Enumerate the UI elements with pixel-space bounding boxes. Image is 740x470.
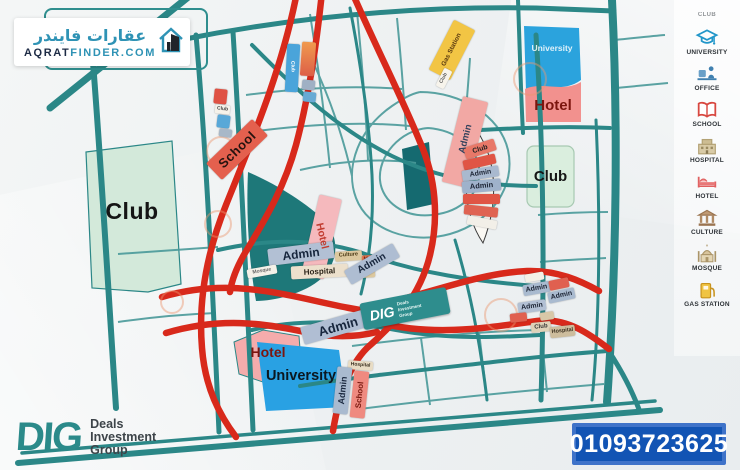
map-label-hotel-bottom: Hotel [238, 340, 298, 364]
brand-name-arabic: عقارات فايندر [34, 26, 146, 45]
legend-item-school: SCHOOL [692, 100, 721, 128]
sketch-circle [160, 290, 184, 314]
strip-orange-small [300, 42, 316, 77]
pillared-building-icon [695, 208, 719, 227]
strip-gray-small [302, 79, 316, 90]
legend-label-hotel: HOTEL [695, 193, 718, 200]
map-label-university-bottom: University [258, 366, 344, 386]
mosque-dome-icon [695, 244, 719, 263]
strip-blue-small [303, 91, 317, 102]
fuel-pump-icon [695, 280, 719, 299]
legend-item-office: OFFICE [694, 64, 719, 92]
map-label-club-left: Club [92, 196, 172, 226]
legend-item-culture: CULTURE [691, 208, 723, 236]
logo-card: عقارات فايندر AQRATFINDER.COM [14, 18, 190, 66]
strip-red-lens [463, 194, 500, 204]
sketch-circle [513, 62, 547, 96]
brand-domain-right: FINDER.COM [70, 47, 156, 59]
brand-domain: AQRATFINDER.COM [24, 47, 156, 59]
legend-label-mosque: MOSQUE [692, 265, 722, 272]
legend-label-hospital: HOSPITAL [690, 157, 724, 164]
legend-label-gas-station: GAS STATION [684, 301, 730, 308]
strip-club-tiny-left: Club [215, 104, 231, 115]
hospital-building-icon [695, 136, 719, 155]
phone-number-badge: 01093723625 [572, 423, 726, 465]
open-book-icon [695, 100, 719, 119]
company-line3: Group [90, 444, 156, 457]
legend-item-gas-station: GAS STATION [684, 280, 730, 308]
house-icon [156, 25, 186, 60]
legend-item-hospital: HOSPITAL [690, 136, 724, 164]
dig-logo-text: DIG [14, 415, 82, 460]
legend-label-office: OFFICE [694, 85, 719, 92]
strip-blue-small [216, 114, 230, 128]
legend-sidebar: CLUB UNIVERSITY OFFICE [674, 0, 740, 356]
map-label-hotel-top: Hotel [526, 92, 580, 118]
strip-red-small [213, 88, 227, 104]
strip-club-tiny-top: Club [287, 51, 297, 81]
sketch-circle [204, 210, 232, 238]
brand-domain-left: AQRAT [24, 47, 70, 59]
dig-company-logo: DIG Deals Investment Group [16, 415, 156, 460]
legend-partial-club: CLUB [698, 12, 716, 18]
legend-item-mosque: MOSQUE [692, 244, 722, 272]
bed-icon [695, 172, 719, 191]
map-label-university-top: University [524, 42, 580, 54]
dig-watermark-abbr: DIG [368, 303, 395, 323]
legend-label-school: SCHOOL [692, 121, 721, 128]
legend-label-culture: CULTURE [691, 229, 723, 236]
masterplan-image: Club Club University Hotel Hotel Univers… [0, 0, 740, 470]
graduation-cap-icon [695, 28, 719, 47]
brand-logo: عقارات فايندر AQRATFINDER.COM [14, 6, 200, 72]
strip-gray-small [219, 128, 233, 138]
office-desk-icon [695, 64, 719, 83]
map-label-club-right: Club [527, 146, 574, 207]
strip-club-right-small: Club [531, 321, 552, 333]
strip-red-small [510, 312, 528, 323]
strip-culture-a: Culture [335, 250, 363, 262]
legend-item-hotel: HOTEL [695, 172, 719, 200]
legend-label-university: UNIVERSITY [686, 49, 727, 56]
legend-item-university: UNIVERSITY [686, 28, 727, 56]
